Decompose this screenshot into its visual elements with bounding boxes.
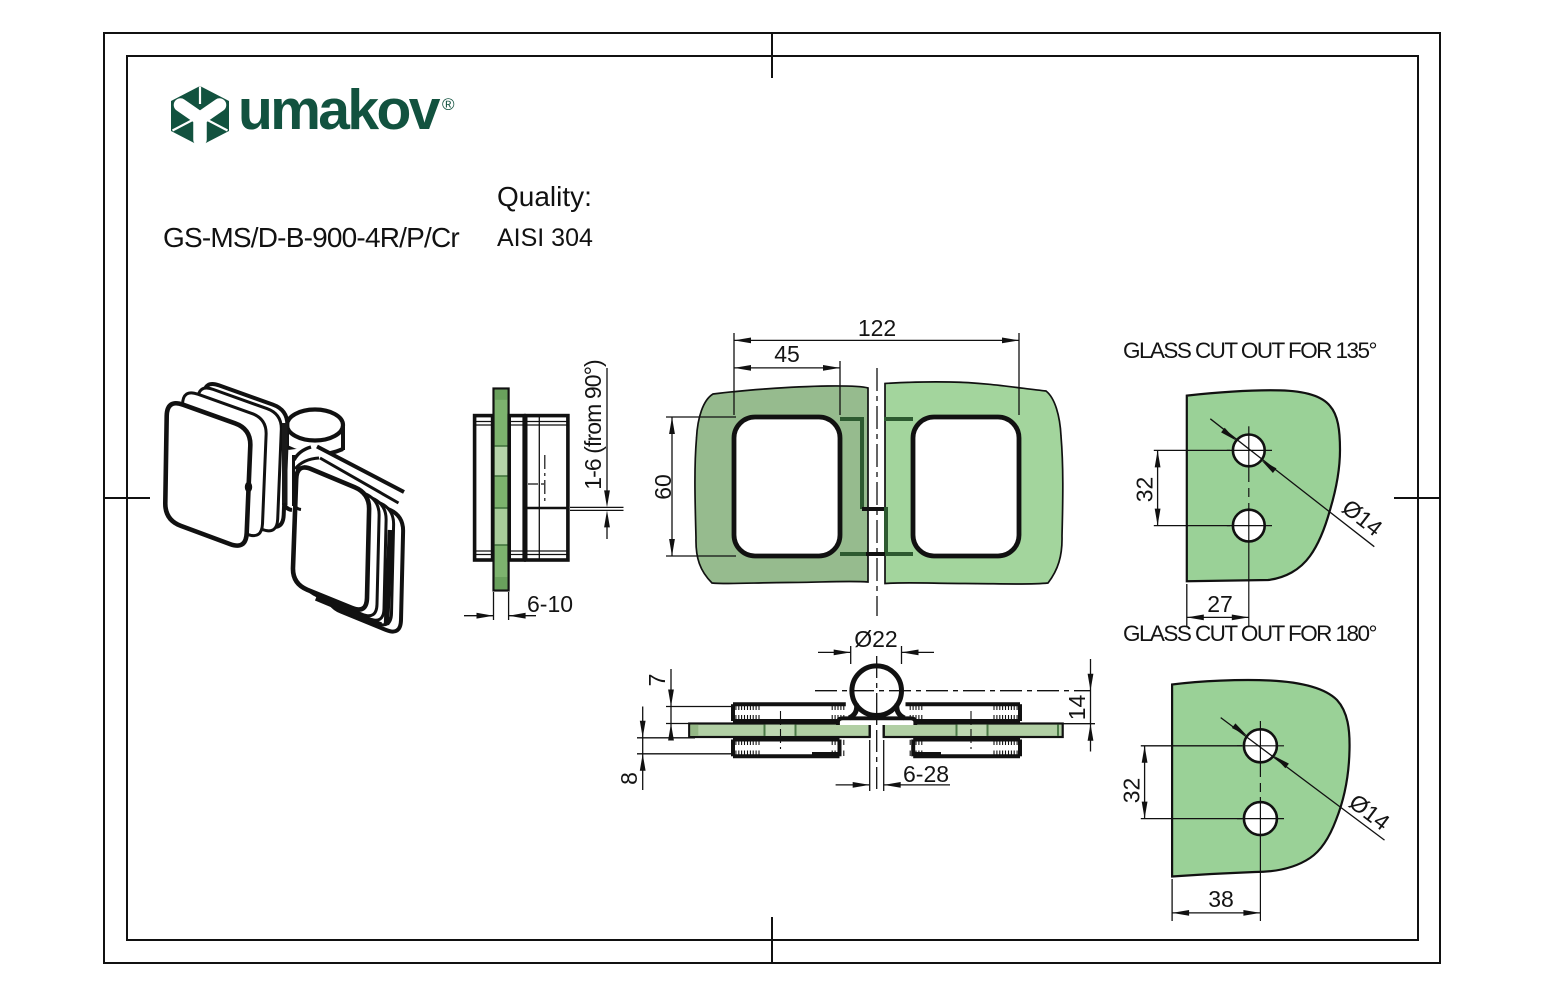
svg-text:GLASS CUT OUT FOR 135°: GLASS CUT OUT FOR 135°	[1123, 338, 1376, 363]
svg-text:45: 45	[774, 341, 800, 367]
svg-text:32: 32	[1132, 477, 1158, 503]
svg-text:14: 14	[1064, 695, 1090, 721]
svg-text:Ø22: Ø22	[854, 626, 897, 652]
svg-text:60: 60	[650, 474, 676, 500]
svg-text:umakov: umakov	[238, 78, 441, 142]
svg-text:Quality:: Quality:	[497, 181, 592, 212]
svg-text:27: 27	[1207, 591, 1233, 617]
svg-text:7: 7	[644, 674, 670, 687]
svg-text:38: 38	[1208, 886, 1234, 912]
svg-text:AISI 304: AISI 304	[497, 224, 593, 252]
svg-text:®: ®	[442, 95, 455, 114]
svg-text:122: 122	[858, 315, 896, 341]
svg-text:32: 32	[1119, 778, 1145, 804]
svg-text:8: 8	[616, 772, 642, 785]
svg-text:GLASS CUT OUT FOR 180°: GLASS CUT OUT FOR 180°	[1123, 621, 1376, 646]
svg-text:1-6 (from 90°): 1-6 (from 90°)	[580, 360, 606, 490]
svg-text:GS-MS/D-B-900-4R/P/Cr: GS-MS/D-B-900-4R/P/Cr	[163, 222, 459, 253]
svg-text:6-28: 6-28	[903, 761, 949, 787]
svg-text:6-10: 6-10	[527, 591, 573, 617]
